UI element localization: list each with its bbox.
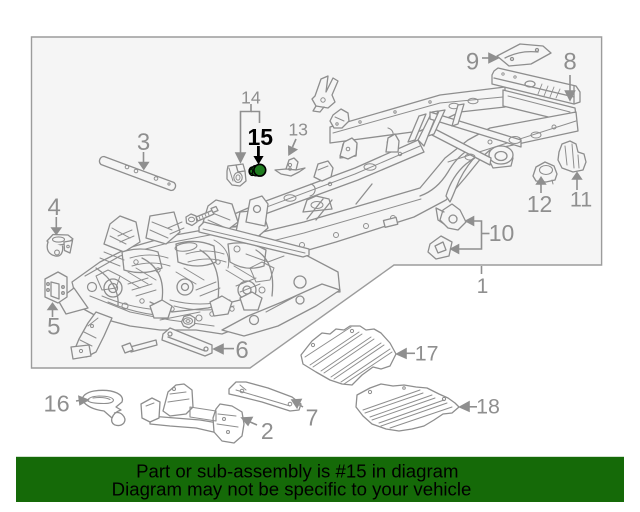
svg-text:7: 7 [306,405,319,431]
svg-text:9: 9 [466,49,479,76]
svg-text:4: 4 [48,194,61,221]
svg-text:16: 16 [44,390,70,416]
svg-text:5: 5 [47,314,60,341]
svg-text:15: 15 [248,124,274,150]
svg-text:2: 2 [261,418,274,444]
svg-text:10: 10 [489,220,515,246]
svg-text:17: 17 [415,341,439,365]
svg-text:Diagram may not be specific to: Diagram may not be specific to your vehi… [112,478,472,499]
svg-text:1: 1 [477,275,489,298]
svg-text:11: 11 [570,188,592,212]
svg-text:18: 18 [476,395,500,419]
svg-text:13: 13 [288,120,308,140]
svg-text:12: 12 [527,191,553,217]
svg-text:3: 3 [137,129,150,156]
svg-text:14: 14 [241,88,261,108]
svg-text:6: 6 [235,337,248,364]
svg-text:8: 8 [563,49,576,76]
